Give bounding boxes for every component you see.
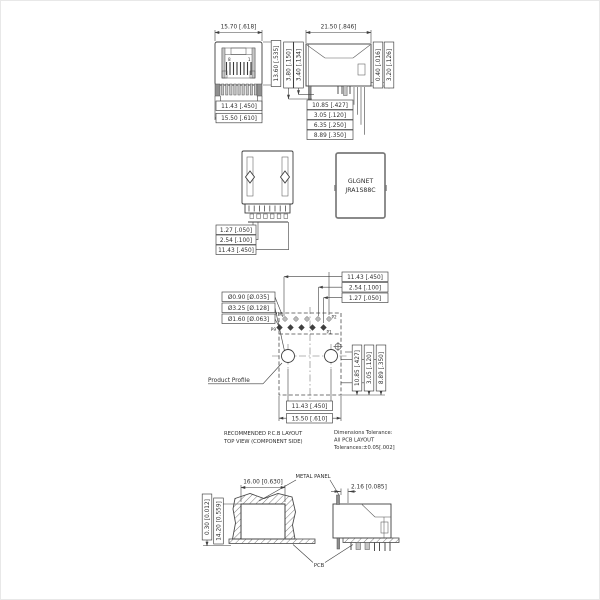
svg-text:10.85 [.427]: 10.85 [.427] [355, 350, 361, 386]
model-label: JRA1S88C [344, 187, 375, 194]
svg-text:METAL PANEL: METAL PANEL [296, 474, 331, 480]
front-leg [337, 538, 340, 549]
svg-text:6.35 [.250]: 6.35 [.250] [314, 123, 346, 129]
svg-text:2.54 [.100]: 2.54 [.100] [220, 238, 252, 244]
svg-text:Product Profile: Product Profile [208, 378, 250, 384]
rear-pin-header [245, 204, 290, 213]
opening-right-wall [252, 48, 255, 78]
svg-text:1.27 [.050]: 1.27 [.050] [349, 296, 381, 302]
svg-text:1.27 [.050]: 1.27 [.050] [220, 228, 252, 234]
dim-front-height: 13.60 [.535] [263, 41, 281, 87]
svg-text:21.50 [.846]: 21.50 [.846] [321, 25, 357, 31]
dim-side-pin-positions: 10.85 [.427] 3.05 [.120] 6.35 [.250] 8.8… [307, 87, 365, 140]
top-body [336, 153, 385, 218]
svg-text:0.30 [0.012]: 0.30 [0.012] [205, 499, 211, 535]
svg-text:2.16 [0.085]: 2.16 [0.085] [351, 485, 387, 491]
svg-text:13.60 [.535]: 13.60 [.535] [274, 46, 280, 82]
svg-text:0.40 [.016]: 0.40 [.016] [376, 49, 382, 81]
pin1-number: 1 [248, 57, 251, 62]
svg-text:11.43 [.450]: 11.43 [.450] [292, 404, 328, 410]
dim-front-contact-span: 11.43 [.450] [216, 96, 262, 111]
front-legs [215, 84, 262, 96]
brand-label: GLGNET [348, 178, 374, 185]
pin-label-p9: P9 [271, 327, 277, 332]
front-view: 8 1 15.70 [.618] 13.60 [.535] [215, 25, 281, 123]
svg-text:PCB: PCB [314, 563, 325, 569]
svg-text:15.70 [.618]: 15.70 [.618] [221, 25, 257, 31]
top-view: GLGNET JRA1S88C [334, 153, 386, 218]
tolerance-note-line2: All PCB LAYOUT [334, 438, 375, 444]
side-body [306, 44, 371, 86]
pin-holes-top-row [282, 316, 332, 322]
pin8-number: 8 [228, 57, 231, 62]
rear-pin-squares [250, 214, 288, 219]
tolerance-note-line3: Tolerances:±0.05[.002] [333, 445, 395, 451]
rear-view: 1.27 [.050] 2.54 [.100] 11.43 [.450] [216, 151, 293, 255]
svg-text:11.43 [.450]: 11.43 [.450] [347, 275, 383, 281]
pin-label-p2: P2 [332, 315, 338, 320]
svg-text:3.05 [.120]: 3.05 [.120] [367, 352, 373, 384]
panel-stop-tab [337, 495, 340, 505]
metal-panel-hatched [233, 494, 296, 540]
tolerance-note-line1: Dimensions Tolerance: [334, 430, 393, 436]
svg-text:3.40 [.134]: 3.40 [.134] [297, 49, 303, 81]
svg-text:11.43 [.450]: 11.43 [.450] [218, 248, 254, 254]
pcb-caption-line2: TOP VIEW (COMPONENT SIDE) [223, 439, 303, 445]
panel-side-view: 2.16 [0.085] [331, 485, 399, 552]
hole-callouts: Ø0.90 [Ø.035] Ø3.25 [Ø.128] Ø1.60 [Ø.063… [222, 292, 285, 351]
mounting-post-right [325, 350, 338, 363]
svg-text:3.05 [.120]: 3.05 [.120] [314, 113, 346, 119]
pin-label-p1: P1 [327, 330, 333, 335]
dim-front-width: 15.70 [.618] [215, 25, 262, 42]
svg-text:Ø0.90 [Ø.035]: Ø0.90 [Ø.035] [228, 294, 269, 301]
dim-side-standoff: 3.20 [.126] [384, 42, 394, 89]
dim-side-tab: 0.40 [.016] [373, 42, 383, 88]
top-notch-right [385, 185, 387, 191]
svg-text:3.80 [.150]: 3.80 [.150] [287, 49, 293, 81]
dim-rear-stack: 1.27 [.050] 2.54 [.100] 11.43 [.450] [216, 222, 289, 255]
pcb-caption-line1: RECOMMENDED P.C.B LAYOUT [224, 431, 303, 437]
svg-text:10.85 [.427]: 10.85 [.427] [312, 103, 348, 109]
dim-pcb-right-stack: 10.85 [.427] 3.05 [.120] 8.89 [.350] [341, 345, 386, 395]
svg-text:8.89 [.350]: 8.89 [.350] [314, 133, 346, 139]
dim-side-depth: 21.50 [.846] [306, 25, 371, 44]
drawing-canvas: 8 1 15.70 [.618] 13.60 [.535] [1, 1, 600, 600]
panel-cutout-view: 16.00 [0.630] 0.30 [0.012] 14.20 [0.559]… [202, 474, 353, 569]
svg-text:15.50 [.610]: 15.50 [.610] [221, 116, 257, 122]
svg-text:11.43 [.450]: 11.43 [.450] [221, 104, 257, 110]
side-view: 21.50 [.846] 3.80 [.150] 3.40 [.134] 0. [284, 25, 394, 140]
svg-text:16.00 [0.630]: 16.00 [0.630] [243, 480, 283, 486]
pin-holes-bottom-row [276, 324, 326, 330]
pcb-strip-right [343, 538, 399, 543]
pcb-strip-left [229, 539, 315, 544]
pcb-layout-view: P10 P2 P9 P1 Ø0.90 [Ø.035] Ø3.25 [Ø.128]… [208, 272, 395, 451]
svg-text:3.20 [.126]: 3.20 [.126] [387, 49, 393, 81]
svg-text:2.54 [.100]: 2.54 [.100] [349, 285, 381, 291]
svg-text:8.89 [.350]: 8.89 [.350] [379, 352, 385, 384]
top-notch-left [334, 185, 336, 191]
opening-left-wall [222, 48, 225, 78]
svg-text:15.50 [.610]: 15.50 [.610] [292, 416, 328, 422]
svg-text:Ø1.60 [Ø.063]: Ø1.60 [Ø.063] [228, 316, 269, 323]
through-pins [351, 543, 390, 552]
product-profile-callout: Product Profile [208, 363, 282, 384]
mounting-post-left [282, 350, 295, 363]
panel-cutout-hole [241, 504, 285, 539]
engineering-drawing-page: 8 1 15.70 [.618] 13.60 [.535] [0, 0, 600, 600]
svg-text:14.20 [0.559]: 14.20 [0.559] [217, 501, 223, 541]
pcb-callout: PCB [293, 545, 353, 570]
svg-text:Ø3.25 [Ø.128]: Ø3.25 [Ø.128] [228, 305, 269, 312]
shield-hole [334, 342, 343, 351]
